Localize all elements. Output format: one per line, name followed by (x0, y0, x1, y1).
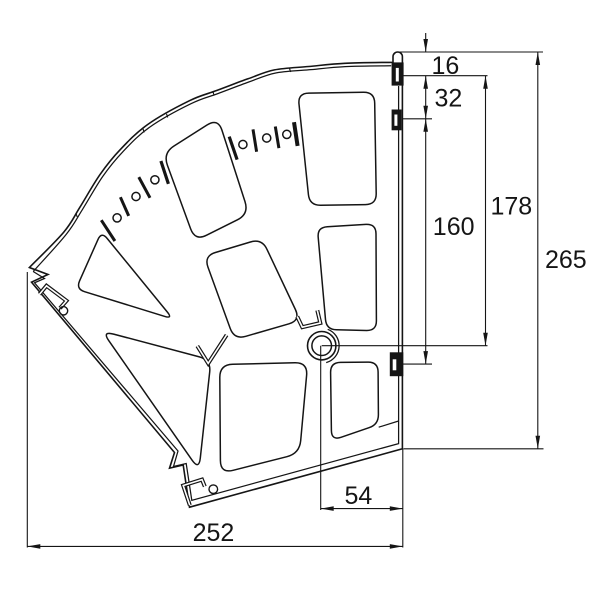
svg-text:160: 160 (433, 213, 475, 241)
svg-text:265: 265 (545, 246, 587, 274)
svg-text:32: 32 (435, 85, 463, 113)
svg-text:252: 252 (193, 519, 235, 547)
svg-text:54: 54 (345, 482, 373, 510)
svg-text:178: 178 (491, 193, 533, 221)
svg-text:16: 16 (432, 52, 460, 80)
